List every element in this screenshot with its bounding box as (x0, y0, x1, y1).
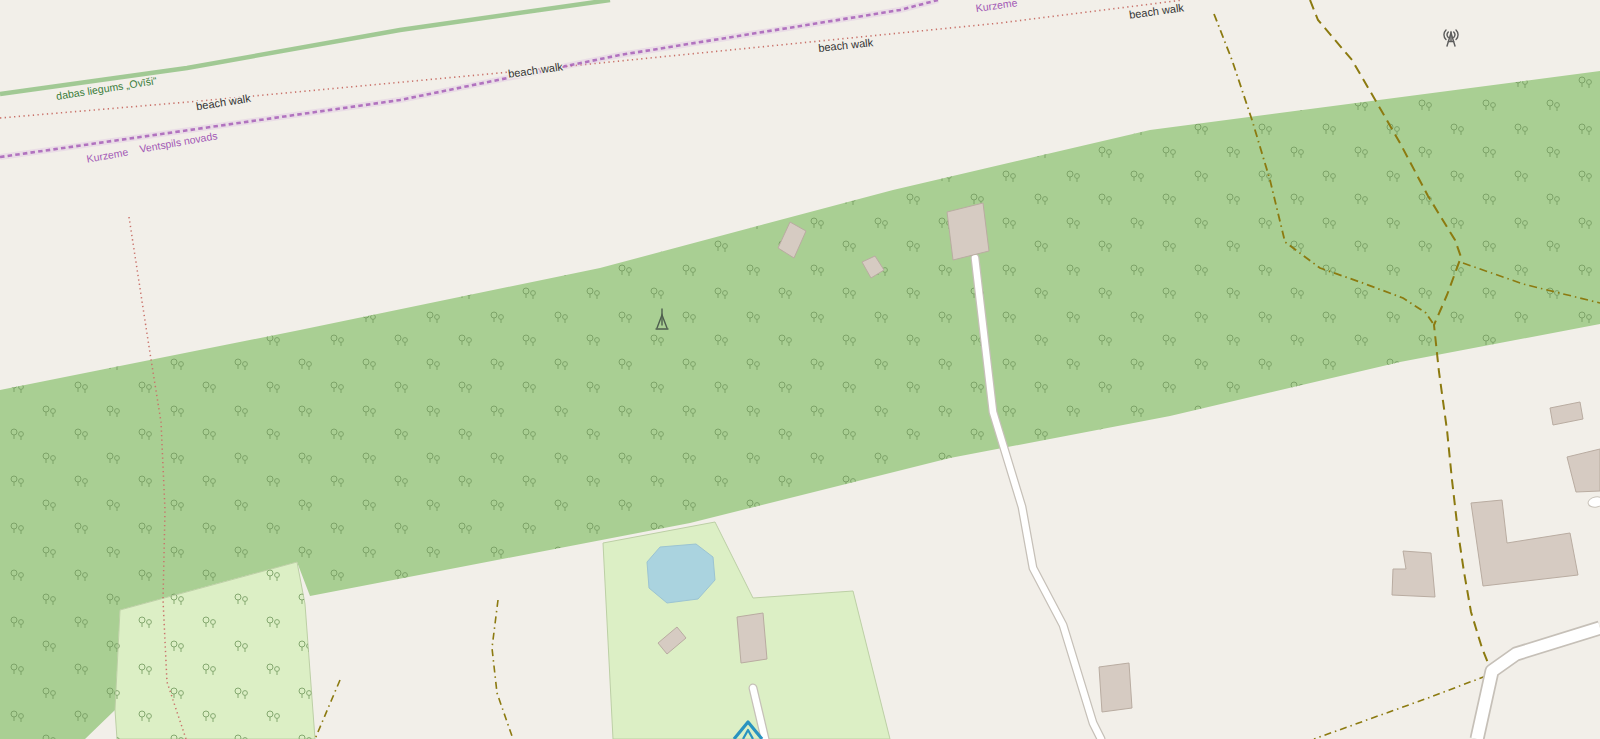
map-svg: dabas liegums „Ovīši“ beach walk beach w… (0, 0, 1600, 739)
building-road-east (1099, 663, 1132, 712)
building-forest-3 (947, 203, 989, 260)
map-canvas[interactable]: dabas liegums „Ovīši“ beach walk beach w… (0, 0, 1600, 739)
building-field-large (737, 613, 767, 663)
